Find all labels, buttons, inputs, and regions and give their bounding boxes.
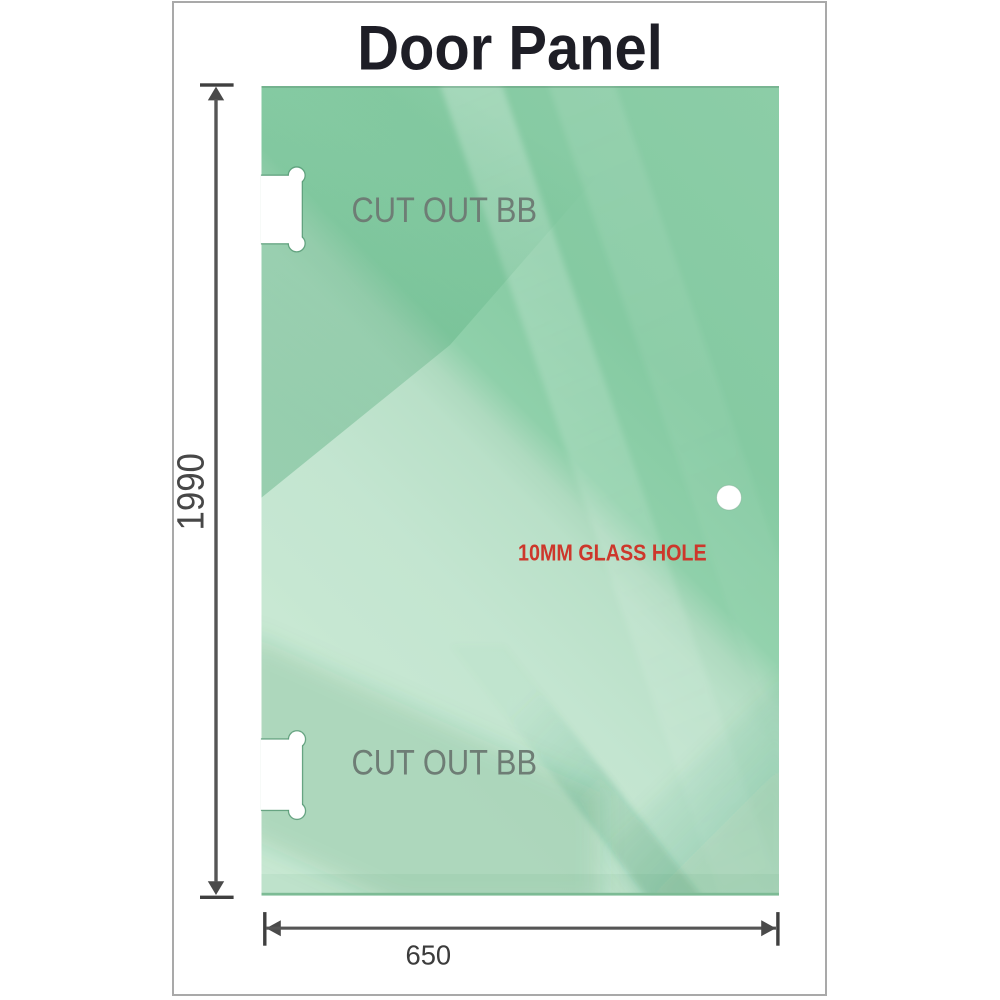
svg-text:CUT OUT BB: CUT OUT BB (352, 190, 538, 229)
svg-text:CUT OUT BB: CUT OUT BB (352, 743, 538, 782)
svg-text:1990: 1990 (169, 453, 212, 530)
svg-text:Door Panel: Door Panel (357, 12, 663, 83)
svg-text:650: 650 (405, 939, 451, 970)
svg-text:10MM GLASS HOLE: 10MM GLASS HOLE (518, 540, 707, 566)
